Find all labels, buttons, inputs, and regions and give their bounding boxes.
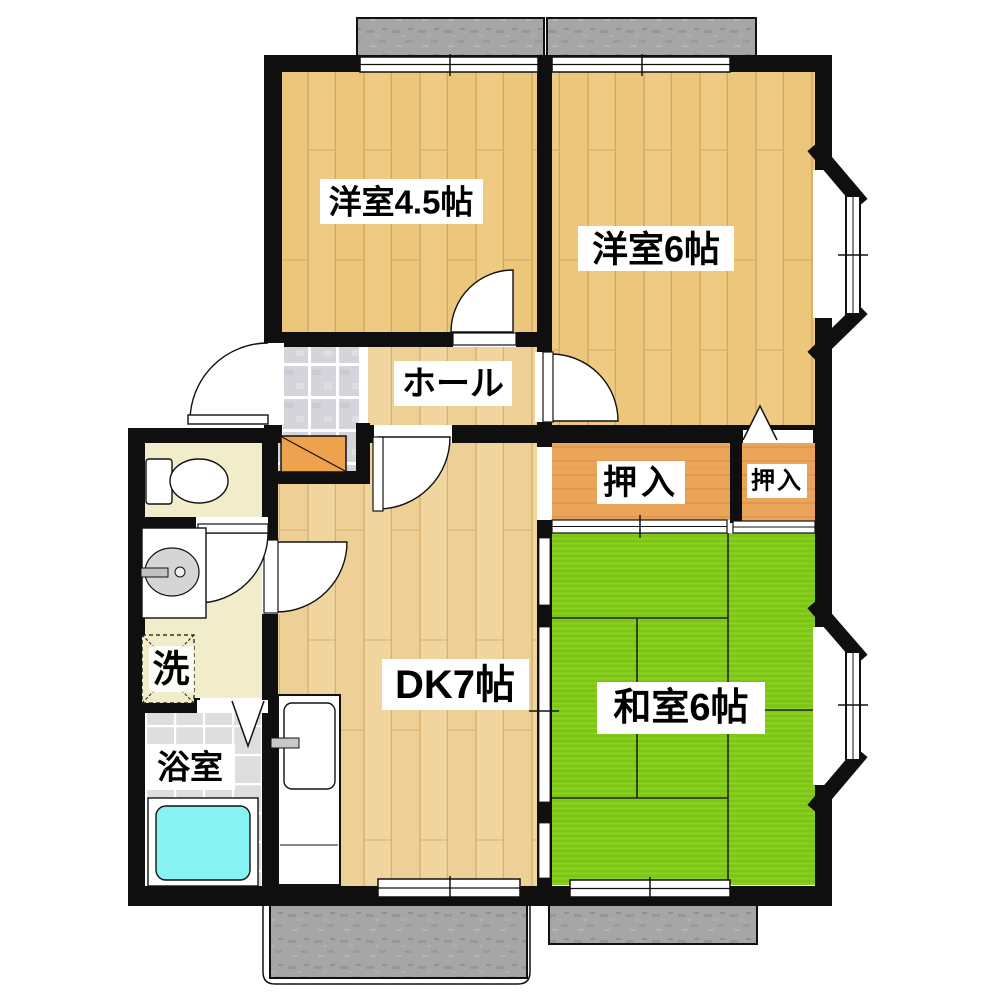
floor-plan-drawing: 洋室4.5帖 洋室6帖 ホール 押入 押入 DK7帖 和室6帖 洗: [0, 0, 1000, 1000]
genkan-edge-strip: [359, 337, 368, 423]
japanese-room-text: 和室6帖: [613, 686, 748, 729]
hall-text: ホール: [402, 365, 504, 403]
wall-dk-left: [262, 443, 278, 893]
label-bathroom: 浴室: [146, 744, 235, 790]
western-room-6-text: 洋室6帖: [592, 229, 720, 270]
dining-kitchen-text: DK7帖: [395, 663, 515, 707]
window-top-left: [360, 54, 538, 76]
label-western-room-6: 洋室6帖: [578, 226, 734, 271]
bathroom-text: 浴室: [157, 749, 223, 786]
wall-leftcol-top: [128, 428, 282, 443]
floor-plan-page: 洋室4.5帖 洋室6帖 ホール 押入 押入 DK7帖 和室6帖 洗: [0, 0, 1000, 1000]
balcony-top-left: [357, 18, 544, 58]
closet-small-text: 押入: [751, 468, 803, 495]
label-dining-kitchen: DK7帖: [382, 659, 529, 710]
balcony-bottom-left: [270, 897, 527, 978]
vanity-sink: [141, 528, 206, 618]
kitchen-faucet: [271, 738, 299, 748]
label-closet-small: 押入: [747, 464, 807, 498]
label-closet-large: 押入: [597, 461, 685, 504]
label-western-room-4-5: 洋室4.5帖: [320, 179, 483, 224]
label-japanese-room: 和室6帖: [597, 682, 765, 734]
closet-large-text: 押入: [603, 464, 679, 502]
western-room-4-5-text: 洋室4.5帖: [329, 184, 474, 221]
window-bottom-dk: [378, 876, 520, 900]
toilet-fixture: [146, 459, 228, 504]
label-hall: ホール: [394, 361, 512, 406]
balcony-top-right: [547, 18, 756, 58]
bathtub: [148, 798, 258, 886]
wall-closet-divider: [730, 440, 742, 523]
window-top-right: [552, 54, 730, 76]
label-laundry: 洗: [149, 646, 194, 692]
window-bottom-washitsu: [570, 877, 730, 900]
genkan-step: [281, 436, 346, 472]
closet-small-sliding-door: [733, 521, 815, 533]
front-door-opening: [262, 343, 284, 425]
laundry-text: 洗: [153, 649, 190, 690]
kitchen-counter: [271, 695, 340, 885]
